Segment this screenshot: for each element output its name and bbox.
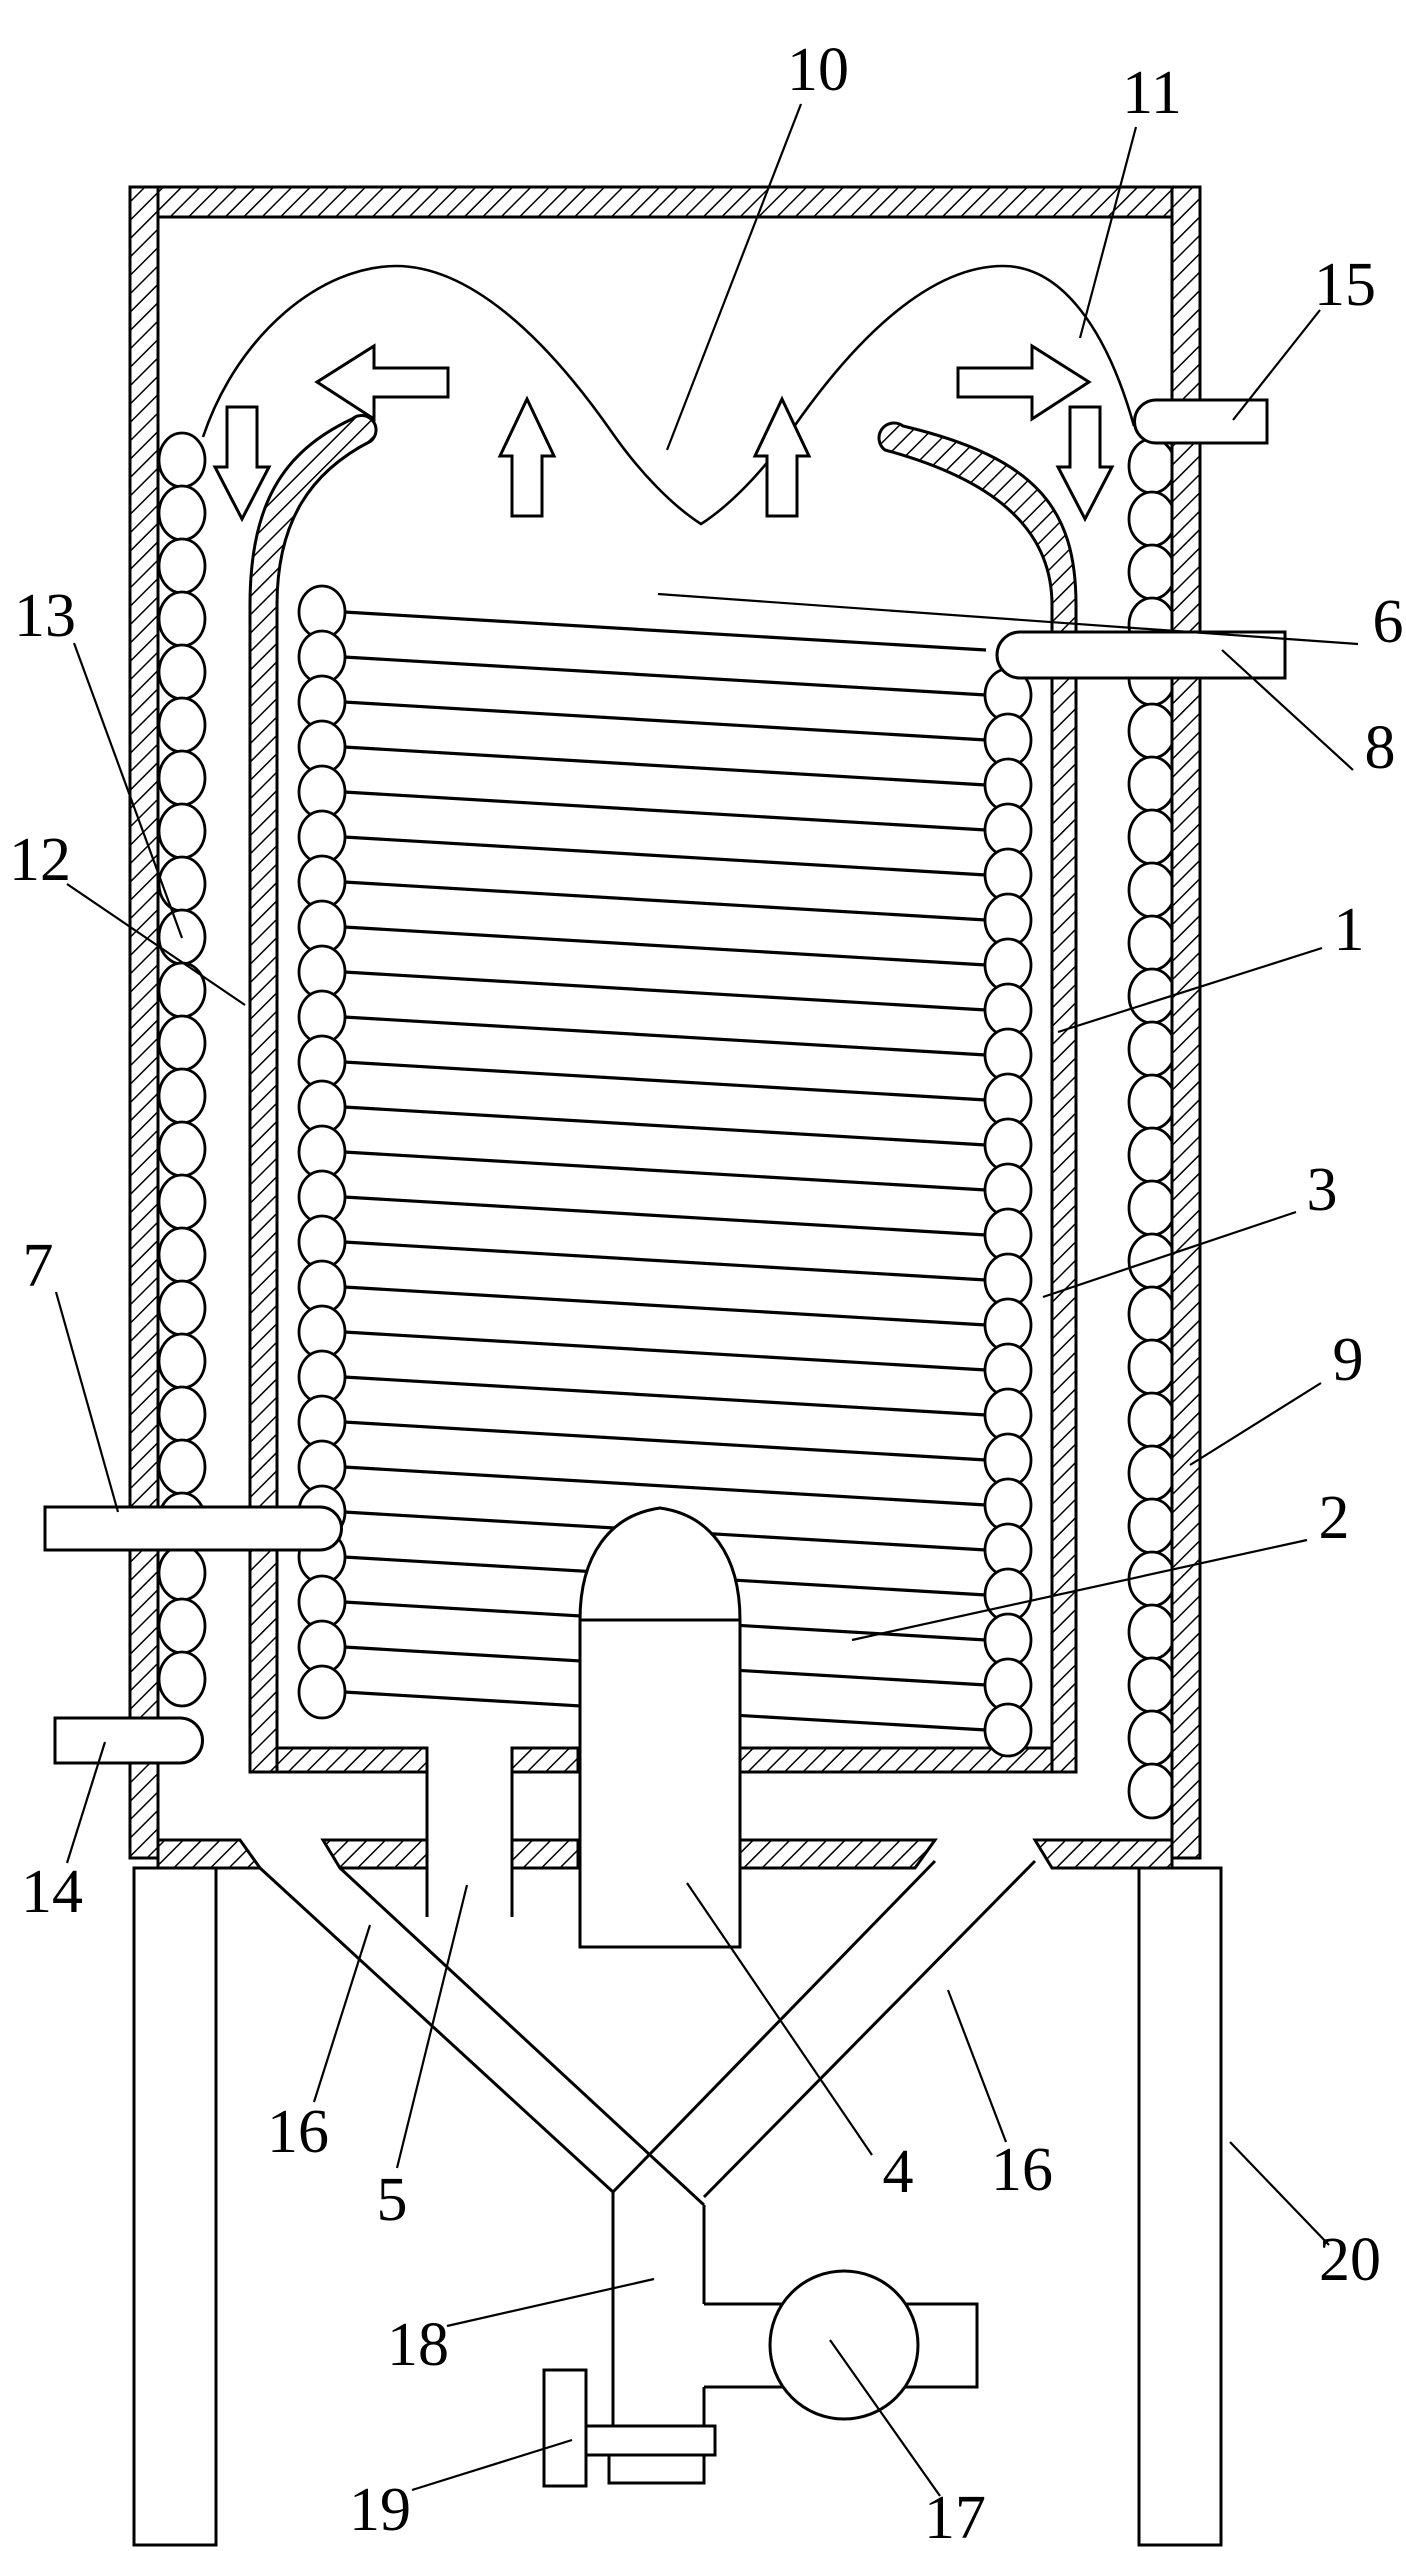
callout-20-label: 20 <box>1319 2226 1381 2294</box>
callout-17-label: 17 <box>924 2484 986 2551</box>
callout-16-leader <box>314 1925 370 2102</box>
callout-7-label: 7 <box>23 1232 54 1300</box>
outer-shell-bottom-5 <box>1035 1840 1172 1868</box>
callout-1-label: 1 <box>1334 896 1365 964</box>
callout-8-leader <box>1222 650 1353 770</box>
callout-15-leader <box>1233 310 1320 420</box>
outer-shell-bottom-1 <box>158 1840 260 1868</box>
callout-5-label: 5 <box>377 2166 408 2234</box>
outer-shell-bottom-4 <box>740 1840 935 1868</box>
support-leg-right <box>1139 1868 1221 2545</box>
callout-4-leader <box>687 1883 872 2155</box>
callout-14-label: 14 <box>21 1858 83 1926</box>
patent-figure: 123456789101112131415161617181920 <box>0 0 1406 2551</box>
callout-4-label: 4 <box>883 2138 914 2206</box>
callout-15-label: 15 <box>1314 251 1376 319</box>
inner-tank-wall-right <box>879 423 1076 1772</box>
flange-bolt-lower <box>609 2455 704 2483</box>
callout-12-label: 12 <box>9 826 71 894</box>
up-arrow-icon <box>500 399 554 516</box>
drain-flange <box>544 2370 715 2486</box>
downcomer-tube <box>427 1749 512 1917</box>
callout-20-leader <box>1230 2142 1329 2245</box>
support-leg-left <box>134 1868 216 2545</box>
callout-6-label: 6 <box>1373 588 1404 656</box>
heater-element <box>580 1508 740 1947</box>
exhaust-pipe-15 <box>1135 400 1268 443</box>
callout-5-leader <box>397 1885 467 2168</box>
outer-shell-bottom-2 <box>323 1840 427 1868</box>
outer-shell-left <box>130 187 158 1858</box>
funnel-wall-outer-right <box>704 1861 1035 2197</box>
callout-10-label: 10 <box>787 36 849 104</box>
flange-plate <box>544 2370 586 2486</box>
flange-bolt-upper <box>586 2426 715 2455</box>
callout-9-leader <box>1190 1383 1321 1465</box>
callout-11-label: 11 <box>1122 59 1182 127</box>
callout-18-leader <box>447 2279 654 2326</box>
outlet-pipe-8 <box>997 632 1285 678</box>
callout-3-label: 3 <box>1307 1156 1338 1224</box>
down-arrow-icon <box>1058 407 1112 519</box>
pump <box>770 2271 918 2419</box>
drain-pipe-14 <box>55 1718 203 1763</box>
callout-2-label: 2 <box>1319 1484 1350 1552</box>
callout-7-leader <box>56 1292 118 1512</box>
callout-13-label: 13 <box>14 582 76 650</box>
callout-16-label: 16 <box>267 2098 329 2166</box>
inlet-pipe-7 <box>45 1507 342 1550</box>
down-arrow-icon <box>215 407 269 519</box>
callout-19-label: 19 <box>349 2476 411 2544</box>
callout-16-label: 16 <box>991 2136 1053 2204</box>
outer-shell-bottom-3 <box>512 1840 578 1868</box>
callout-16-leader <box>948 1990 1006 2142</box>
left-arrow-icon <box>317 346 448 419</box>
callout-11-leader <box>1080 127 1136 338</box>
callout-8-label: 8 <box>1365 714 1396 782</box>
outer-shell-top <box>130 187 1200 217</box>
heat-exchange-coil-right <box>985 669 1031 1756</box>
callout-9-label: 9 <box>1333 1326 1364 1394</box>
callout-18-label: 18 <box>387 2311 449 2379</box>
